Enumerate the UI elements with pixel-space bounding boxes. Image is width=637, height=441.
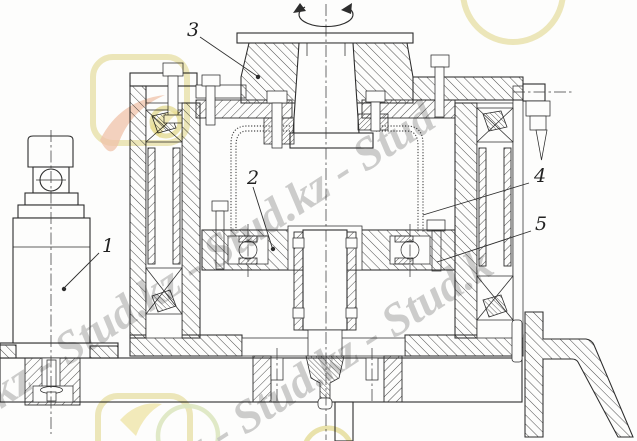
spindle-end-tip [318, 398, 332, 409]
callout-label-3: 3 [187, 19, 199, 41]
cylinder-step-1 [25, 193, 78, 205]
hub-block-right [384, 356, 402, 402]
assembly-section-drawing: 1 2 3 4 5 [0, 0, 637, 441]
right-cartridge-strip-b [504, 148, 511, 266]
callout-label-4: 4 [533, 165, 546, 187]
cylinder-cap [28, 136, 73, 167]
callout-label-1: 1 [102, 235, 114, 257]
bearing-right-top [477, 108, 513, 142]
bracket-pin [512, 320, 522, 362]
right-top-flange [413, 77, 523, 100]
drawing-canvas: 1 2 3 4 5 [0, 0, 637, 441]
table-top-plate [237, 33, 413, 43]
fitting-neck [530, 116, 546, 130]
spindle-shaft [303, 230, 347, 330]
right-wall-outer [513, 86, 523, 338]
left-flange-ledge [196, 85, 246, 98]
left-wall-inner [182, 103, 200, 338]
left-cartridge-strip-a [148, 148, 155, 264]
callout-label-5: 5 [535, 213, 547, 235]
output-shaft-stub [523, 84, 545, 101]
callout-label-2: 2 [246, 167, 259, 189]
fitting-body [526, 101, 550, 116]
clamp-nut [47, 392, 56, 401]
